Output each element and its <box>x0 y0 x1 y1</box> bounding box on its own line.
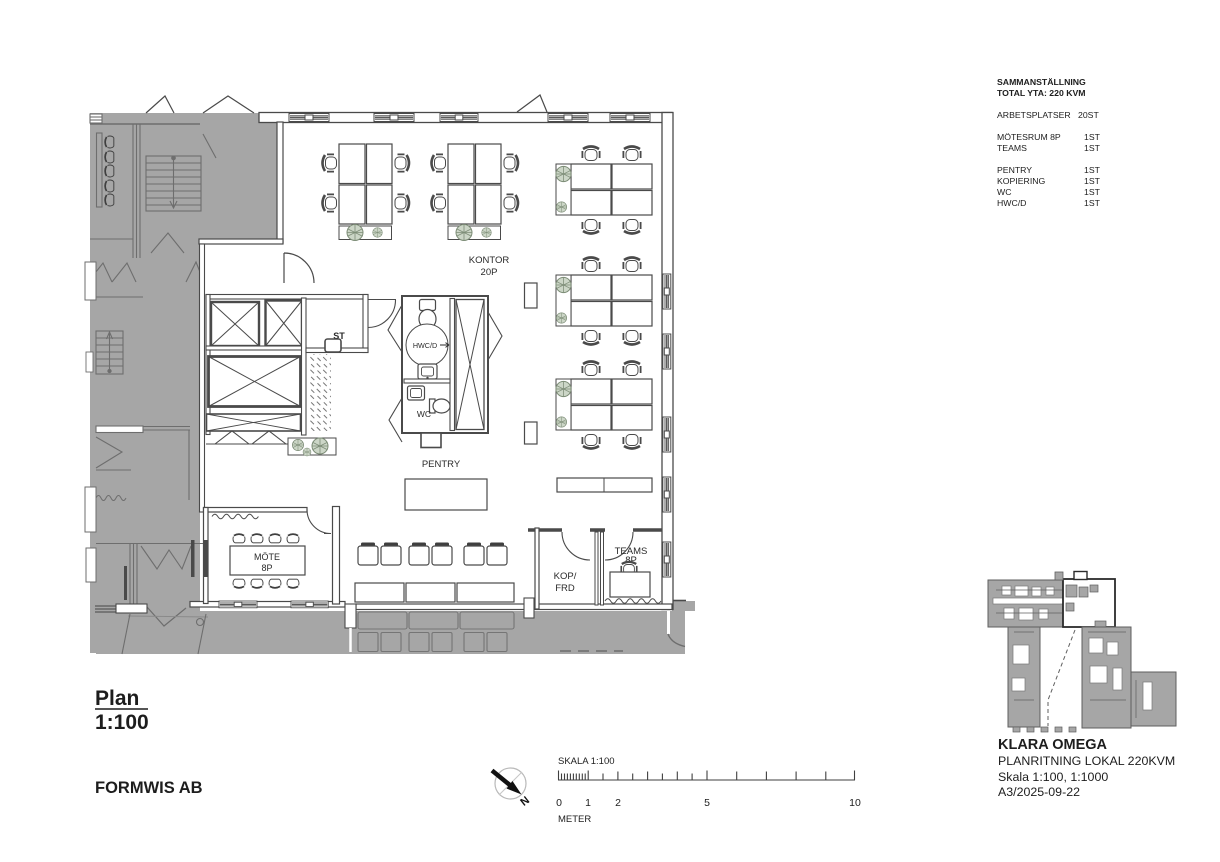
svg-text:HWC/D: HWC/D <box>413 341 437 350</box>
svg-text:N: N <box>518 794 532 808</box>
svg-text:1ST: 1ST <box>1084 143 1101 153</box>
svg-text:A3/2025-09-22: A3/2025-09-22 <box>998 785 1080 799</box>
svg-text:KLARA OMEGA: KLARA OMEGA <box>998 737 1108 753</box>
svg-text:WC: WC <box>417 409 431 419</box>
svg-text:1ST: 1ST <box>1084 176 1101 186</box>
svg-text:1: 1 <box>585 797 591 809</box>
svg-text:1:100: 1:100 <box>95 711 149 734</box>
svg-text:SKALA 1:100: SKALA 1:100 <box>558 756 615 767</box>
svg-text:TEAMS: TEAMS <box>997 143 1027 153</box>
svg-text:PENTRY: PENTRY <box>422 459 461 470</box>
svg-text:10: 10 <box>849 797 861 809</box>
svg-text:20P: 20P <box>481 267 498 278</box>
svg-text:Skala 1:100, 1:1000: Skala 1:100, 1:1000 <box>998 770 1108 784</box>
svg-text:PENTRY: PENTRY <box>997 165 1032 175</box>
svg-text:WC: WC <box>997 187 1011 197</box>
svg-text:TOTAL YTA: 220 KVM: TOTAL YTA: 220 KVM <box>997 88 1086 98</box>
svg-text:5: 5 <box>704 797 710 809</box>
svg-text:MÖTE: MÖTE <box>254 552 280 562</box>
svg-text:KOP/: KOP/ <box>554 571 577 582</box>
svg-text:KONTOR: KONTOR <box>469 255 510 266</box>
svg-text:1ST: 1ST <box>1084 187 1101 197</box>
svg-text:20ST: 20ST <box>1078 110 1099 120</box>
svg-text:MÖTESRUM 8P: MÖTESRUM 8P <box>997 132 1061 142</box>
svg-text:SAMMANSTÄLLNING: SAMMANSTÄLLNING <box>997 77 1086 87</box>
svg-text:PLANRITNING LOKAL 220KVM: PLANRITNING LOKAL 220KVM <box>998 754 1175 768</box>
svg-text:1ST: 1ST <box>1084 132 1101 142</box>
svg-text:FORMWIS AB: FORMWIS AB <box>95 779 203 797</box>
svg-text:1ST: 1ST <box>1084 165 1101 175</box>
svg-text:FRD: FRD <box>555 583 575 594</box>
svg-text:Plan: Plan <box>95 687 139 710</box>
svg-text:8P: 8P <box>261 563 272 573</box>
svg-text:METER: METER <box>558 814 591 825</box>
svg-text:0: 0 <box>556 797 562 809</box>
svg-text:ARBETSPLATSER: ARBETSPLATSER <box>997 110 1071 120</box>
svg-text:2: 2 <box>615 797 621 809</box>
svg-text:1ST: 1ST <box>1084 198 1101 208</box>
svg-text:HWC/D: HWC/D <box>997 198 1026 208</box>
svg-text:KOPIERING: KOPIERING <box>997 176 1046 186</box>
